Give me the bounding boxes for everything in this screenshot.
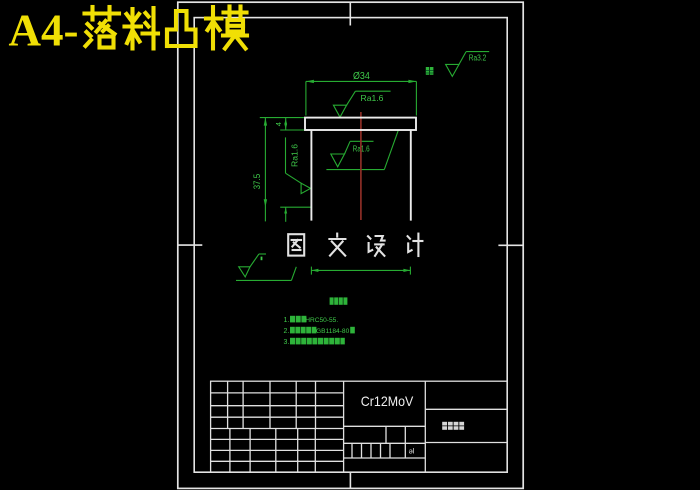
svg-text:Cr12MoV: Cr12MoV — [361, 393, 414, 409]
svg-text:3.: 3. — [284, 339, 290, 346]
svg-text:əl: əl — [409, 446, 415, 455]
svg-text:A4-: A4- — [9, 5, 79, 55]
svg-text:Ra3.2: Ra3.2 — [469, 53, 487, 62]
svg-text:37.5: 37.5 — [252, 174, 263, 190]
svg-text:Ø34: Ø34 — [353, 71, 370, 82]
svg-text:Ra1.6: Ra1.6 — [290, 144, 300, 167]
svg-text:Ra1.6: Ra1.6 — [361, 93, 384, 103]
svg-text:4: 4 — [274, 122, 283, 126]
svg-text:1.: 1. — [284, 317, 290, 324]
svg-text:GB1184-80: GB1184-80 — [316, 328, 350, 335]
svg-text:HRC50-55.: HRC50-55. — [305, 317, 338, 324]
svg-text:2.: 2. — [284, 328, 290, 335]
